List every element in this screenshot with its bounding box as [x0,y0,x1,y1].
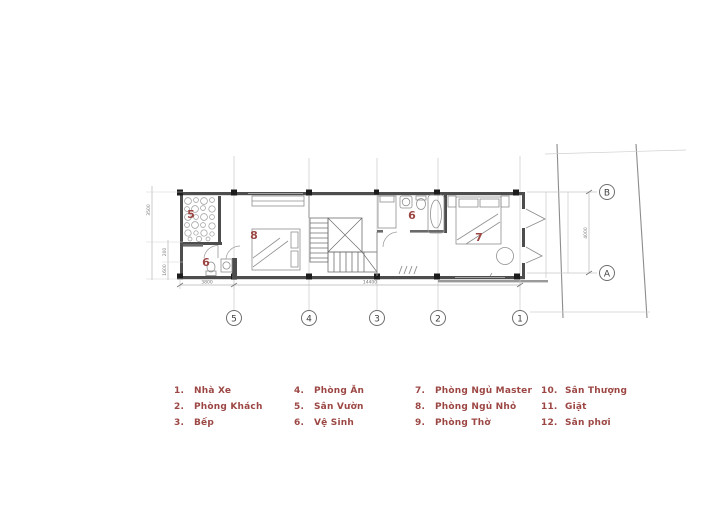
legend-item: 3. Bếp [174,418,263,434]
legend-number: 11. [541,402,560,412]
grid-bubble-5: 5 [231,314,237,324]
structural-columns [177,190,520,280]
garden-room: 5 [180,196,222,245]
upper-bathroom: 6 [377,192,447,247]
grid-bubble-B: B [604,188,610,198]
legend-item: 11. Giặt [541,402,627,418]
legend-label: Phòng Ngủ Master [435,386,532,396]
legend-number: 3. [174,418,189,428]
dim-left-seg1: 200 [162,248,168,257]
legend-label: Phòng Thờ [435,418,491,428]
legend-column-2: 4. Phòng Ăn 5. Sân Vườn 6. Vệ Sinh [294,386,364,434]
legend-number: 12. [541,418,560,428]
legend-label: Vệ Sinh [314,418,354,428]
dim-bottom-right: 14400 [363,280,377,286]
legend-label: Bếp [194,418,214,428]
right-dimension: 4000 [583,190,592,275]
legend-item: 7. Phòng Ngủ Master [415,386,532,402]
legend-number: 6. [294,418,309,428]
grid-bubble-3: 3 [374,314,380,324]
legend-item: 1. Nhà Xe [174,386,263,402]
room-number-bath-upper: 6 [408,209,416,222]
legend-item: 12. Sân phơi [541,418,627,434]
legend-item: 4. Phòng Ăn [294,386,364,402]
legend-number: 7. [415,386,430,396]
dim-left-seg2: 1600 [162,264,168,276]
grid-bubble-4: 4 [306,314,312,324]
legend-number: 2. [174,402,189,412]
vent-hatch [399,266,417,274]
legend-label: Sân Vườn [314,402,364,412]
legend-label: Phòng Khách [194,402,263,412]
floor-plan-drawing: 4000 [140,138,700,334]
room-number-master: 7 [475,231,483,244]
legend-number: 8. [415,402,430,412]
left-dimensions: 3500 200 1600 [146,186,183,280]
legend-item: 6. Vệ Sinh [294,418,364,434]
legend-label: Phòng Ngủ Nhỏ [435,402,516,412]
master-bedroom: 7 [448,196,514,276]
balcony-edge [438,280,548,282]
legend-label: Nhà Xe [194,386,231,396]
site-boundary-lines [557,144,647,318]
legend-column-4: 10. Sân Thượng 11. Giặt 12. Sân phơi [541,386,627,434]
legend-number: 9. [415,418,430,428]
grid-row-bubbles: B A [600,185,615,281]
small-bedroom: 8 [226,196,309,270]
legend-item: 2. Phòng Khách [174,402,263,418]
legend-number: 5. [294,402,309,412]
legend-column-3: 7. Phòng Ngủ Master 8. Phòng Ngủ Nhỏ 9. … [415,386,532,434]
right-wall-door-symbols [526,209,545,263]
legend-number: 4. [294,386,309,396]
legend-item: 9. Phòng Thờ [415,418,532,434]
room-number-bath-lower: 6 [202,256,210,269]
grid-bubble-1: 1 [517,314,523,324]
legend-label: Sân phơi [565,418,611,428]
staircase [310,218,377,276]
grid-bubble-2: 2 [435,314,441,324]
dim-right-ab: 4000 [583,227,589,239]
grid-bubble-A: A [604,269,611,279]
floor-plan-page: 4000 [0,0,718,509]
room-number-garden: 5 [187,208,195,221]
room-number-small-bedroom: 8 [250,229,258,242]
legend-item: 8. Phòng Ngủ Nhỏ [415,402,532,418]
dim-bottom-left: 3800 [201,280,213,286]
legend-item: 5. Sân Vườn [294,402,364,418]
legend-number: 10. [541,386,560,396]
lower-bathroom: 6 [183,244,237,279]
grid-column-bubbles: 5 4 3 2 1 [227,311,528,326]
legend-label: Sân Thượng [565,386,627,396]
legend-label: Giặt [565,402,587,412]
legend-item: 10. Sân Thượng [541,386,627,402]
dim-left-outer: 3500 [146,204,152,216]
legend-label: Phòng Ăn [314,386,364,396]
site-faint-lines [530,150,686,312]
legend-number: 1. [174,386,189,396]
legend-column-1: 1. Nhà Xe 2. Phòng Khách 3. Bếp [174,386,263,434]
